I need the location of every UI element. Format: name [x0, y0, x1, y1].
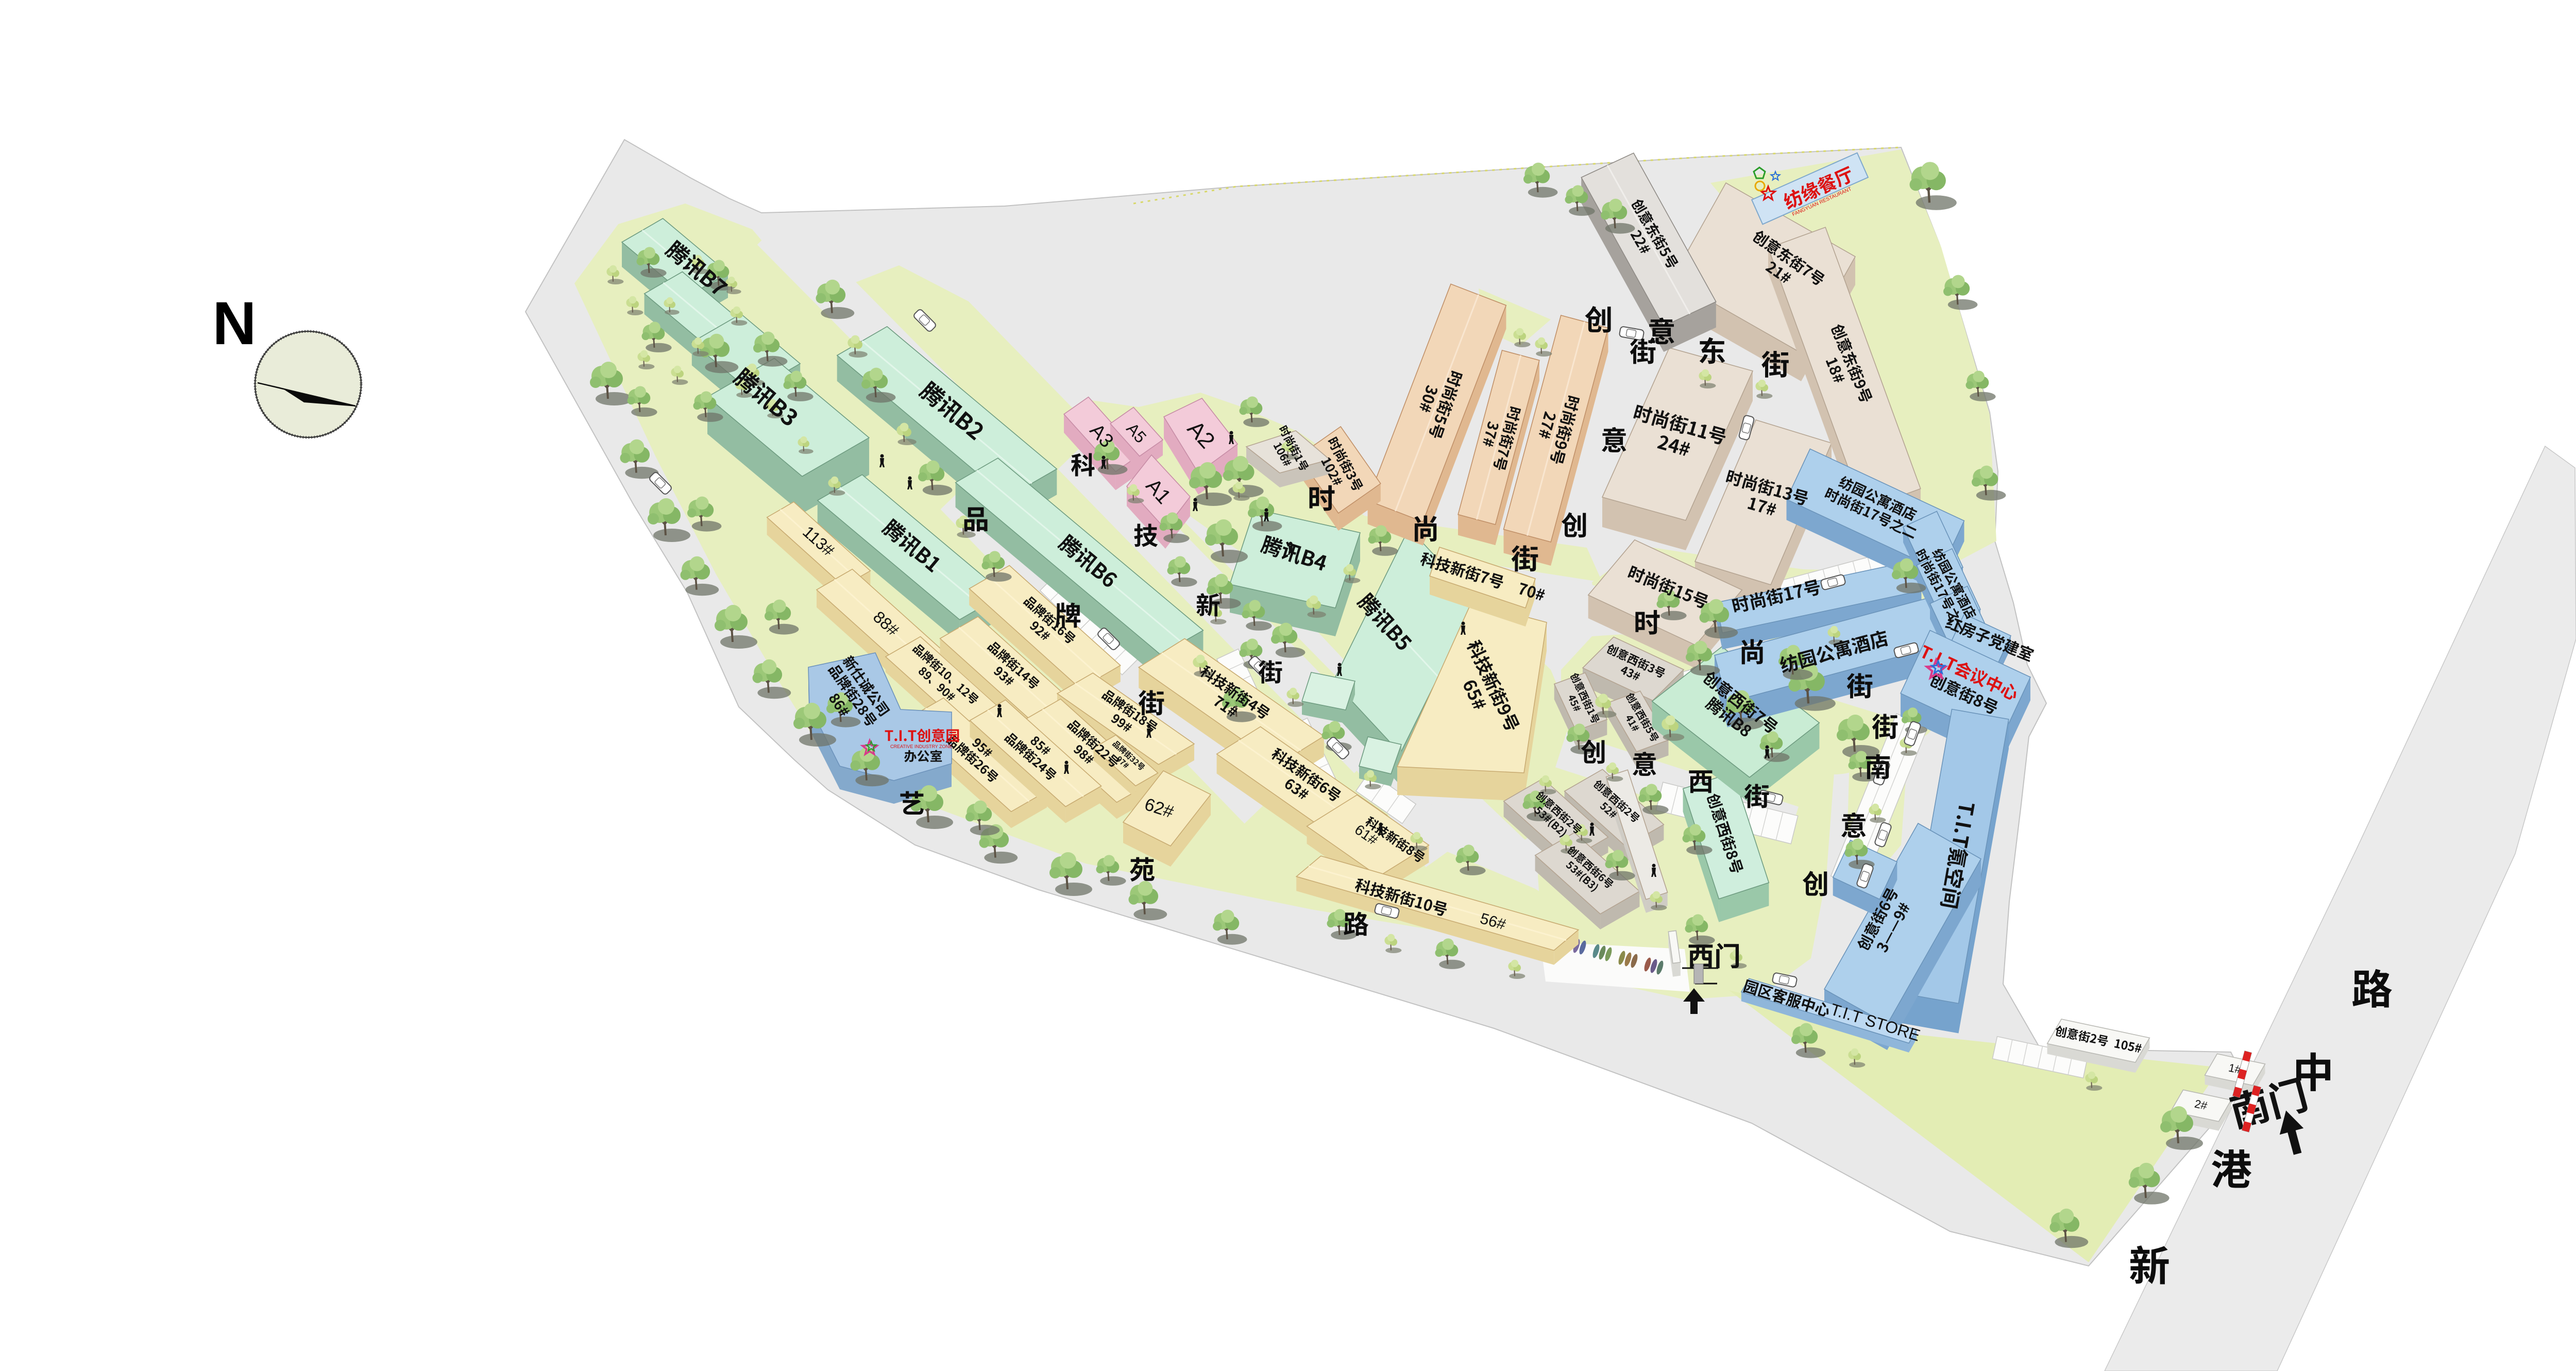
svg-text:N: N: [212, 290, 256, 358]
svg-text:CREATIVE INDUSTRY ZONE: CREATIVE INDUSTRY ZONE: [890, 744, 952, 749]
